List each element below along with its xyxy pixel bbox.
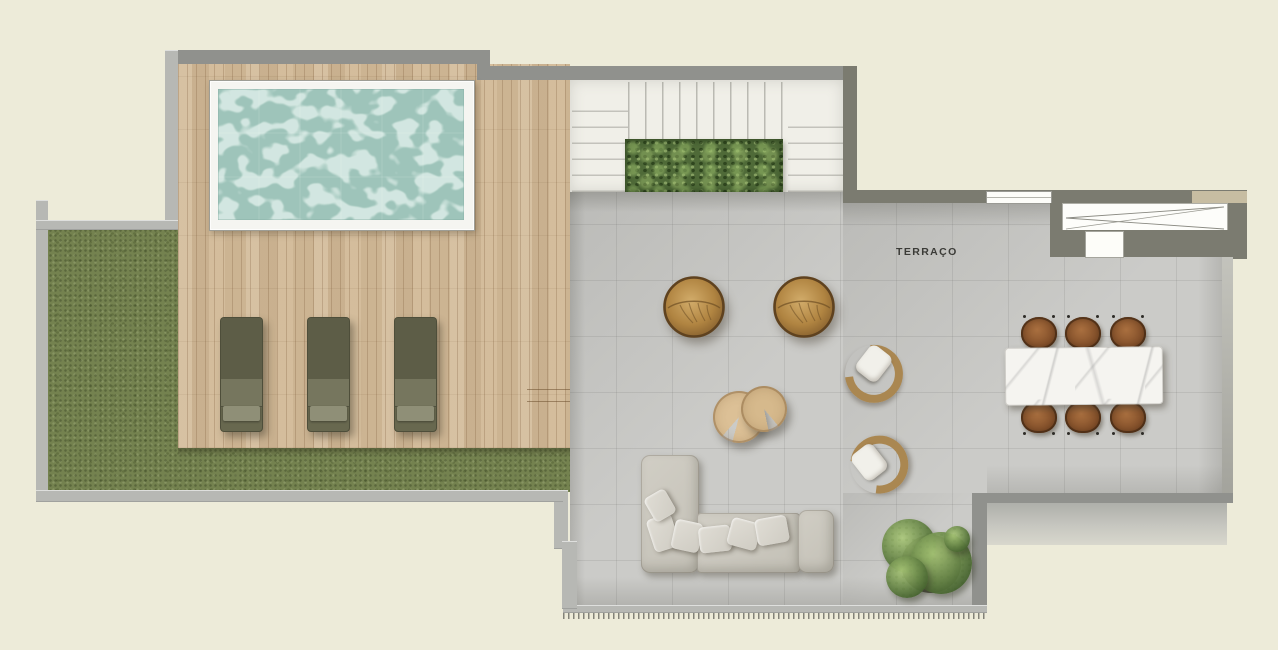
dining-chair-top-3 bbox=[1110, 317, 1146, 349]
wall-lawn-bottom bbox=[36, 490, 563, 502]
door-step-notch bbox=[1085, 231, 1124, 258]
wall-terrace-bottom bbox=[563, 605, 987, 613]
wall-top-right-tan bbox=[1192, 191, 1247, 203]
lounger-towel bbox=[310, 406, 346, 421]
sliding-door-leaf-lines bbox=[1063, 204, 1227, 231]
window-mullion bbox=[987, 197, 1051, 198]
wall-bottomright-horizontal bbox=[972, 493, 1233, 503]
side-table-2 bbox=[741, 386, 787, 432]
lounger-towel bbox=[223, 406, 259, 421]
plant-foliage bbox=[944, 526, 970, 552]
lounger-backrest bbox=[308, 318, 349, 380]
lounger-towel bbox=[397, 406, 433, 421]
sliding-door bbox=[1062, 203, 1228, 232]
pool-water bbox=[218, 89, 464, 220]
dining-chair-bottom-1 bbox=[1021, 401, 1057, 433]
pool bbox=[209, 80, 475, 231]
wall-door-jamb-left bbox=[1050, 203, 1062, 232]
sun-lounger-1 bbox=[220, 317, 263, 432]
ledge-bottom-right bbox=[987, 503, 1227, 545]
wall-deck-top bbox=[165, 50, 490, 64]
dining-chair-top-2 bbox=[1065, 317, 1101, 349]
lounger-seat bbox=[221, 379, 262, 407]
stair-treads-right bbox=[788, 112, 843, 192]
terrace-label: TERRAÇO bbox=[896, 246, 958, 258]
dining-chair-bottom-2 bbox=[1065, 401, 1101, 433]
dining-table bbox=[1005, 346, 1164, 406]
wall-lawn-left bbox=[36, 200, 48, 502]
sofa-pillow bbox=[754, 514, 790, 546]
stair-treads-left bbox=[572, 96, 628, 192]
wall-under-door bbox=[1050, 230, 1240, 257]
dining-chair-bottom-3 bbox=[1110, 401, 1146, 433]
lawn-bottom bbox=[48, 448, 570, 492]
wall-stairs-right bbox=[843, 66, 857, 202]
lounger-seat bbox=[395, 379, 436, 407]
wall-bottomright-vertical bbox=[972, 493, 987, 613]
wall-lawn-top bbox=[36, 220, 178, 230]
lounger-backrest bbox=[221, 318, 262, 380]
plant-foliage bbox=[886, 556, 928, 598]
wall-stairs-top bbox=[477, 66, 857, 80]
sun-lounger-2 bbox=[307, 317, 350, 432]
sofa-armrest bbox=[798, 510, 834, 573]
hedge-planter bbox=[625, 139, 783, 192]
stair-treads-vertical bbox=[628, 82, 790, 140]
window-top-wall bbox=[986, 191, 1052, 204]
deck-step bbox=[527, 389, 570, 402]
wall-corner-right bbox=[1228, 203, 1247, 259]
round-pouf-1 bbox=[662, 275, 726, 339]
wall-deck-left bbox=[165, 50, 178, 222]
pouf-top bbox=[772, 275, 836, 339]
pouf-top bbox=[662, 275, 726, 339]
wall-step-left-b bbox=[562, 541, 577, 609]
sun-lounger-3 bbox=[394, 317, 437, 432]
round-pouf-2 bbox=[772, 275, 836, 339]
railing-hatch-bottom bbox=[563, 613, 987, 619]
dining-chair-top-1 bbox=[1021, 317, 1057, 349]
floor-plan: TERRAÇO bbox=[0, 0, 1278, 650]
lounger-backrest bbox=[395, 318, 436, 380]
wall-right-outer bbox=[1222, 257, 1233, 503]
lounger-seat bbox=[308, 379, 349, 407]
